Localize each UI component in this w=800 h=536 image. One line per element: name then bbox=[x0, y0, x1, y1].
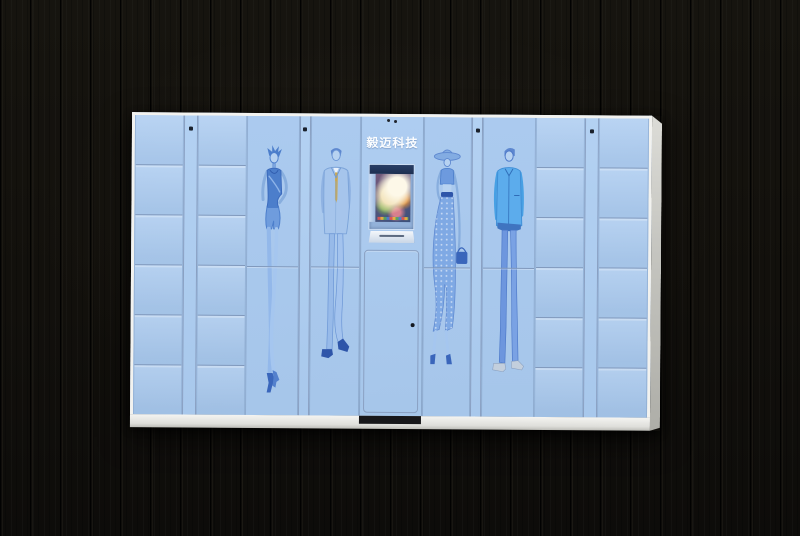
locker-column-small-1 bbox=[133, 115, 184, 414]
locker-doors-area: 毅迈科技 bbox=[130, 112, 652, 418]
lock-dot-icon bbox=[189, 127, 193, 131]
cabinet-base bbox=[130, 414, 650, 431]
wood-wall-backdrop: 毅迈科技 bbox=[0, 0, 800, 536]
keyhole-icon bbox=[410, 324, 414, 328]
locker-door bbox=[536, 267, 583, 317]
console-column: 毅迈科技 bbox=[359, 117, 423, 416]
locker-column-small-2 bbox=[196, 116, 247, 415]
vent-dots-icon bbox=[388, 119, 391, 122]
locker-door bbox=[599, 317, 647, 367]
locker-door bbox=[198, 315, 245, 365]
man-casual-jacket-illustration bbox=[482, 145, 534, 405]
figure-panel-woman-hat bbox=[422, 117, 473, 416]
locker-door bbox=[135, 214, 182, 264]
locker-door bbox=[134, 364, 181, 414]
brand-label: 毅迈科技 bbox=[366, 136, 418, 151]
locker-door bbox=[600, 118, 648, 167]
locker-door bbox=[198, 265, 245, 315]
locker-door bbox=[135, 264, 182, 314]
locker-door bbox=[136, 115, 183, 164]
locker-door bbox=[598, 367, 646, 417]
console-door bbox=[363, 250, 419, 413]
locker-door bbox=[600, 167, 648, 217]
locker-door bbox=[199, 165, 246, 215]
locker-door bbox=[134, 314, 181, 364]
screen-bezel bbox=[369, 164, 415, 230]
locker-door bbox=[198, 215, 245, 265]
locker-cabinet: 毅迈科技 bbox=[130, 112, 662, 431]
shelf-slot bbox=[379, 235, 405, 237]
screen-top-band bbox=[370, 165, 414, 174]
woman-tank-top-illustration bbox=[246, 143, 298, 403]
locker-door bbox=[135, 164, 182, 214]
locker-door bbox=[536, 217, 583, 267]
locker-door bbox=[199, 116, 246, 165]
screen-unit bbox=[369, 164, 416, 243]
locker-door bbox=[535, 317, 582, 367]
base-notch bbox=[359, 416, 421, 424]
locker-door bbox=[535, 367, 582, 417]
figure-panel-woman-tank-top bbox=[245, 116, 300, 415]
pickup-shelf bbox=[369, 231, 415, 243]
lock-dot-icon bbox=[590, 129, 594, 133]
locker-door bbox=[536, 167, 583, 217]
woman-hat-skirt-illustration bbox=[423, 144, 472, 404]
locker-door bbox=[599, 217, 647, 267]
figure-panel-man-casual bbox=[481, 118, 536, 417]
cabinet-front: 毅迈科技 bbox=[130, 112, 652, 431]
touchscreen bbox=[376, 174, 411, 222]
locker-door bbox=[197, 365, 244, 415]
locker-door bbox=[537, 118, 584, 167]
lock-dot-icon bbox=[476, 129, 480, 133]
figure-panel-man-suit bbox=[309, 116, 362, 415]
locker-door bbox=[599, 267, 647, 317]
locker-column-small-4 bbox=[597, 118, 649, 417]
locker-column-small-3 bbox=[534, 118, 585, 417]
lock-dot-icon bbox=[303, 127, 307, 131]
man-suit-illustration bbox=[310, 143, 361, 403]
